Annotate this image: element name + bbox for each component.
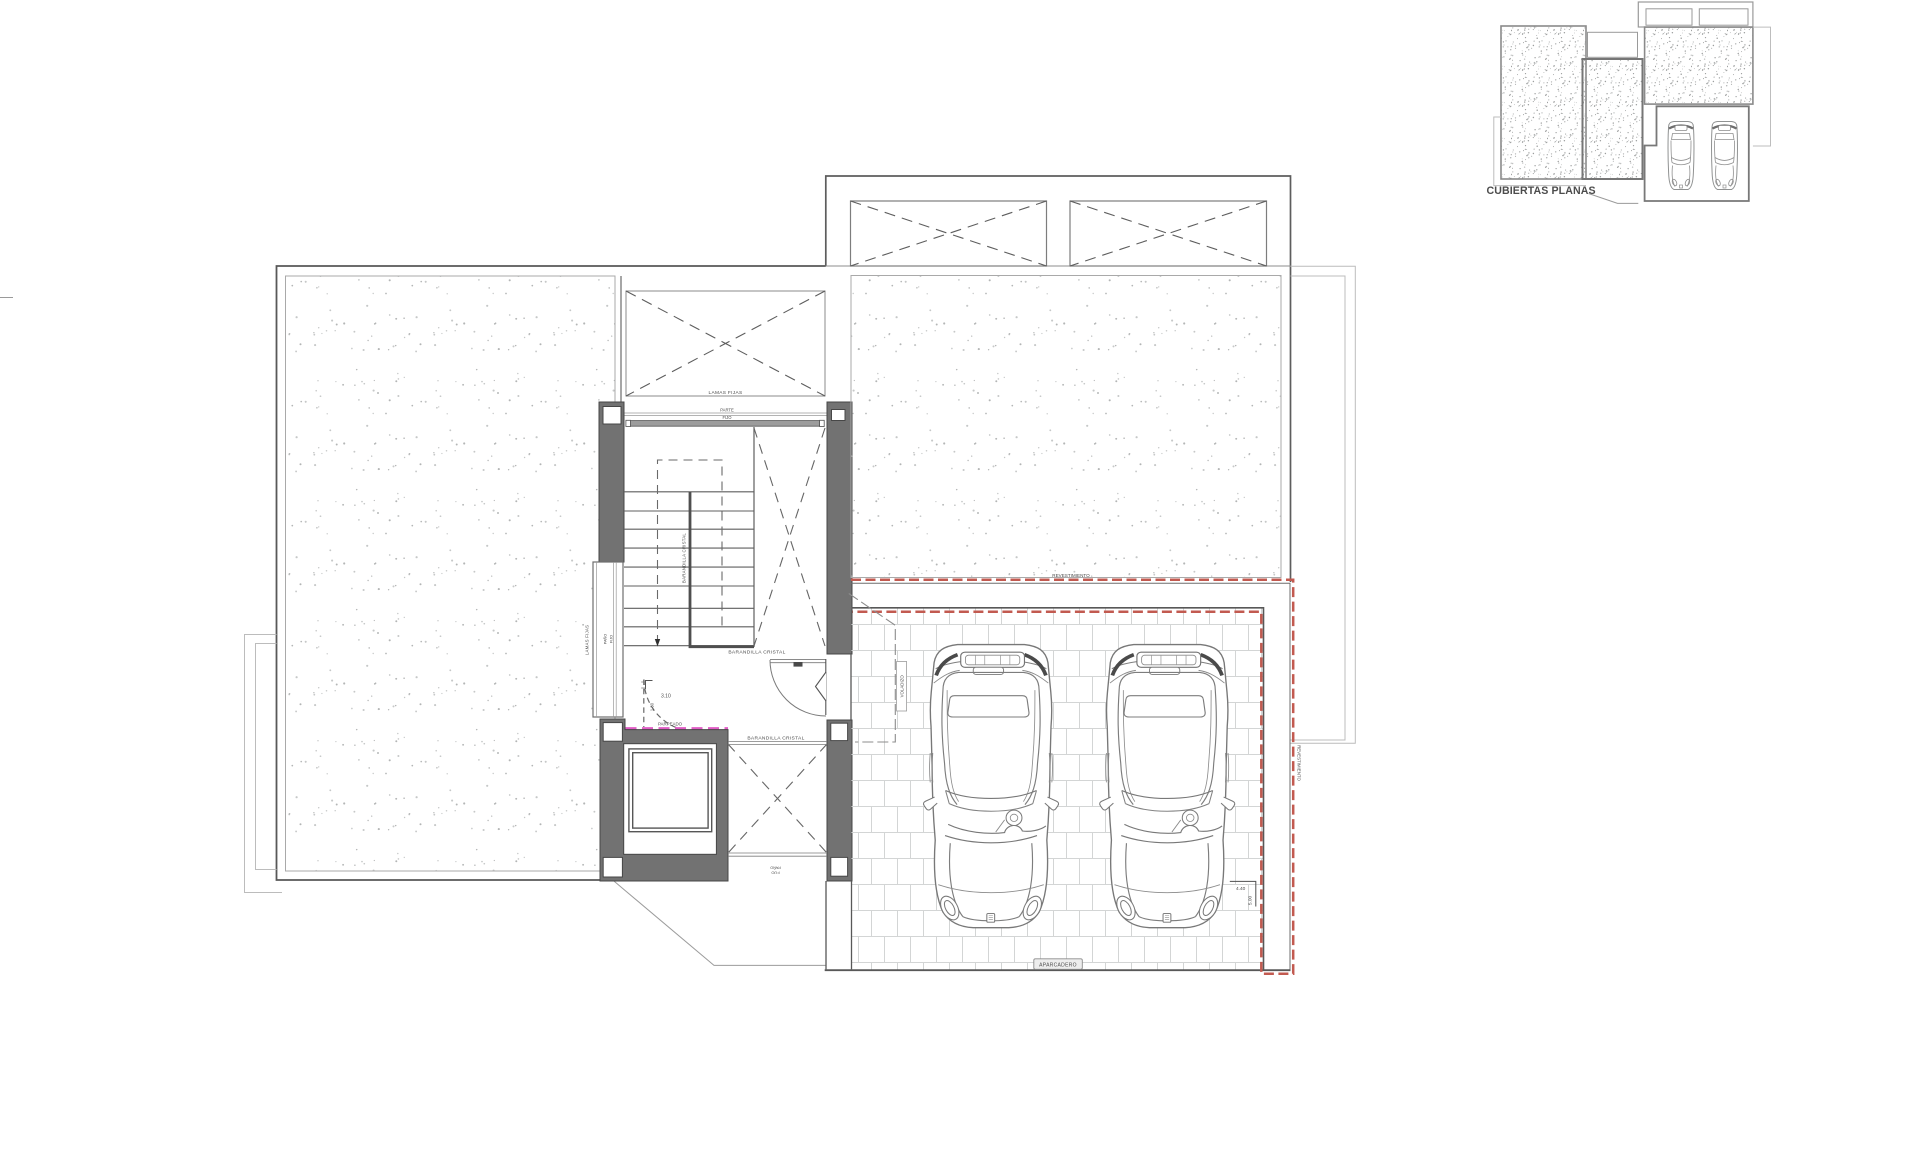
svg-text:REVESTIMIENTO: REVESTIMIENTO — [1296, 745, 1301, 781]
svg-text:4.40: 4.40 — [1236, 886, 1246, 892]
svg-text:BARANDILLA CRISTAL: BARANDILLA CRISTAL — [747, 735, 804, 741]
svg-text:BARANDILLA CRISTAL: BARANDILLA CRISTAL — [728, 650, 785, 656]
svg-text:FIJO: FIJO — [722, 415, 732, 420]
svg-text:REVESTIMIENTO: REVESTIMIENTO — [1052, 573, 1090, 578]
svg-text:BARANDILLA CRISTAL: BARANDILLA CRISTAL — [682, 533, 687, 583]
svg-text:LAMAS FIJAS: LAMAS FIJAS — [709, 390, 743, 396]
svg-text:PAÑO: PAÑO — [770, 866, 781, 871]
svg-text:FIJO: FIJO — [609, 635, 613, 643]
svg-text:5.00: 5.00 — [1247, 896, 1253, 906]
svg-text:3.10: 3.10 — [661, 694, 671, 700]
svg-text:PARPEADO: PARPEADO — [658, 722, 683, 727]
svg-text:LAMAS FIJAS: LAMAS FIJAS — [585, 625, 590, 655]
svg-text:1.30: 1.30 — [649, 702, 654, 711]
svg-text:VOLADIZO: VOLADIZO — [900, 675, 905, 698]
svg-text:PARTE: PARTE — [720, 408, 734, 413]
svg-text:PAÑO: PAÑO — [603, 634, 608, 645]
svg-text:CUBIERTAS PLANAS: CUBIERTAS PLANAS — [1487, 185, 1596, 197]
svg-text:APARCADERO: APARCADERO — [1039, 963, 1077, 969]
svg-text:FIJO: FIJO — [771, 871, 779, 875]
